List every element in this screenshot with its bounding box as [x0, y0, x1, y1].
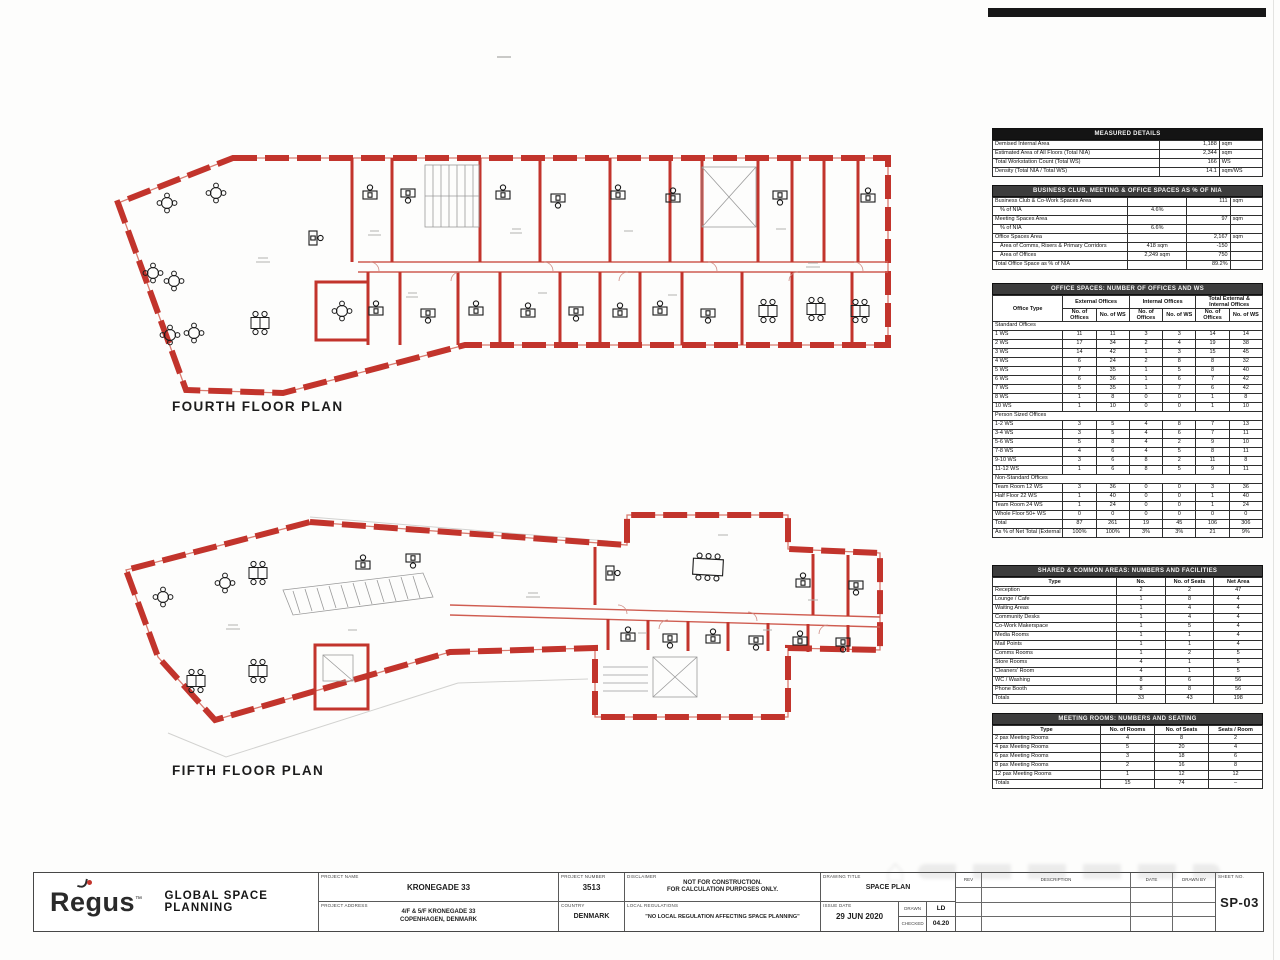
table-row: 2 pax Meeting Rooms482	[993, 735, 1263, 744]
table-cell: Lounge / Cafe	[993, 596, 1117, 605]
fifth-floor-plan-label: FIFTH FLOOR PLAN	[172, 763, 324, 778]
table-cell: 5	[1063, 439, 1096, 448]
table-cell: 1	[1117, 650, 1166, 659]
table-row: 3-4 WS3546711	[993, 430, 1263, 439]
table-row: Office Spaces Area2,167sqm	[993, 234, 1263, 243]
table-cell: 1	[1117, 605, 1166, 614]
table-row: 6 WS63616742	[993, 376, 1263, 385]
table-cell: 8 pax Meeting Rooms	[993, 762, 1101, 771]
table-cell: 6 WS	[993, 376, 1063, 385]
table-cell: 111	[1187, 198, 1230, 207]
table-cell: 4	[1214, 623, 1263, 632]
table-cell: 19	[1129, 520, 1162, 529]
table-row: 8 WS180018	[993, 394, 1263, 403]
table-cell: 10	[1229, 439, 1262, 448]
table-cell: 1	[1129, 349, 1162, 358]
table-cell: 0	[1163, 394, 1196, 403]
table-cell: 11	[1196, 457, 1229, 466]
table-cell: 16	[1155, 762, 1209, 771]
table-cell: 3%	[1129, 529, 1162, 538]
table-cell: 0	[1129, 511, 1162, 520]
table-cell: 1	[1196, 502, 1229, 511]
table-cell: 106	[1196, 520, 1229, 529]
table-cell: 10	[1229, 403, 1262, 412]
table-row: 2 WS1734241938	[993, 340, 1263, 349]
table-cell: 750	[1187, 252, 1230, 261]
table-cell: 10 WS	[993, 403, 1063, 412]
table-cell: 2	[1163, 457, 1196, 466]
table-cell: 14	[1196, 331, 1229, 340]
table-cell: 0	[1163, 502, 1196, 511]
table-cell: 21	[1196, 529, 1229, 538]
table-cell: WS	[1219, 159, 1262, 168]
regulations-label: LOCAL REGULATIONS	[627, 903, 678, 908]
table-cell: 7	[1196, 421, 1229, 430]
table-cell: 20	[1155, 744, 1209, 753]
issue-date-field: ISSUE DATE 29 JUN 2020	[821, 902, 899, 931]
area-ratios-title: BUSINESS CLUB, MEETING & OFFICE SPACES A…	[992, 185, 1263, 197]
table-cell: 42	[1096, 349, 1129, 358]
table-cell: 8	[1129, 457, 1162, 466]
fourth-floor-plan	[118, 158, 888, 393]
table-cell: 40	[1096, 493, 1129, 502]
table-row: Mail Points114	[993, 641, 1263, 650]
shared-col-no: No.	[1117, 578, 1166, 587]
table-cell: 6.6%	[1128, 225, 1187, 234]
table-cell: 5	[1063, 385, 1096, 394]
table-cell: 3	[1163, 331, 1196, 340]
table-cell: 74	[1155, 780, 1209, 789]
revision-table: REV DESCRIPTION DATE DRAWN BY	[956, 873, 1216, 931]
table-cell: 4	[1214, 614, 1263, 623]
table-row: Phone Booth8856	[993, 686, 1263, 695]
table-row: Total Workstation Count (Total WS)166WS	[993, 159, 1263, 168]
table-row: Cleaners' Room415	[993, 668, 1263, 677]
table-cell: 4	[1129, 439, 1162, 448]
table-cell: Totals	[993, 780, 1101, 789]
table-cell: sqm	[1219, 141, 1262, 150]
table-cell: 56	[1214, 686, 1263, 695]
table-cell	[1187, 225, 1230, 234]
checked-label: CHECKED	[902, 921, 924, 926]
table-row: Waiting Areas144	[993, 605, 1263, 614]
table-cell: 2	[1165, 650, 1214, 659]
shared-col-area: Net Area	[1214, 578, 1263, 587]
table-cell: 4	[1129, 421, 1162, 430]
table-cell: 100%	[1063, 529, 1096, 538]
table-cell: 18	[1155, 753, 1209, 762]
disclaimer-line2: FOR CALCULATION PURPOSES ONLY.	[667, 887, 778, 895]
table-cell: 1	[1101, 771, 1155, 780]
shared-col-seats: No. of Seats	[1165, 578, 1214, 587]
table-row: Store Rooms415	[993, 659, 1263, 668]
disclaimer-field: DISCLAIMER NOT FOR CONSTRUCTION. FOR CAL…	[625, 873, 820, 902]
table-cell: % of NIA	[993, 225, 1128, 234]
table-row: Total Office Space as % of NIA89.2%	[993, 261, 1263, 270]
table-cell: Business Club & Co-Work Spaces Area	[993, 198, 1128, 207]
project-address-line1: 4/F & 5/F KRONEGADE 33	[401, 909, 475, 917]
revision-empty-row	[956, 903, 1215, 918]
table-cell: 4	[1117, 659, 1166, 668]
table-row: 1 WS1111331414	[993, 331, 1263, 340]
table-cell: 11	[1096, 331, 1129, 340]
table-cell: Whole Floor 50+ WS	[993, 511, 1063, 520]
table-cell: 97	[1187, 216, 1230, 225]
table-cell: 36	[1096, 484, 1129, 493]
table-row: 10 WS11000110	[993, 403, 1263, 412]
table-cell: 3	[1063, 430, 1096, 439]
table-cell: 9%	[1229, 529, 1262, 538]
table-cell: Total Workstation Count (Total WS)	[993, 159, 1160, 168]
table-cell: 8	[1117, 686, 1166, 695]
table-cell: 4	[1209, 744, 1263, 753]
table-cell: Total	[993, 520, 1063, 529]
disclaimer-label: DISCLAIMER	[627, 874, 657, 879]
table-cell: 6	[1096, 448, 1129, 457]
regus-logo-dot	[87, 880, 92, 885]
fifth-floor-plan	[126, 515, 880, 757]
brand-trademark: ™	[135, 896, 143, 903]
meeting-col-type: Type	[993, 726, 1101, 735]
col-group-internal: Internal Offices	[1129, 296, 1196, 309]
table-row: Totals3343198	[993, 695, 1263, 704]
table-cell: 2,344	[1160, 150, 1219, 159]
table-cell: % of NIA	[993, 207, 1128, 216]
table-cell: 19	[1196, 340, 1229, 349]
table-cell: 4	[1165, 614, 1214, 623]
table-cell: 1,188	[1160, 141, 1219, 150]
table-cell: 42	[1229, 385, 1262, 394]
table-row: Co-Work Makerspace154	[993, 623, 1263, 632]
table-cell: 14	[1229, 331, 1262, 340]
table-row: Density (Total NIA / Total WS)14.1sqm/WS	[993, 168, 1263, 177]
table-row: Area of Comms, Risers & Primary Corridor…	[993, 243, 1263, 252]
table-cell: 5	[1163, 466, 1196, 475]
table-cell: 3%	[1163, 529, 1196, 538]
scan-artifact-bar	[988, 8, 1266, 17]
table-cell: 418 sqm	[1128, 243, 1187, 252]
table-cell: 1	[1117, 632, 1166, 641]
drawing-title-label: DRAWING TITLE	[823, 874, 861, 879]
table-row: 1-2 WS3548713	[993, 421, 1263, 430]
project-number-cell: PROJECT NUMBER 3513 COUNTRY DENMARK	[559, 873, 625, 931]
table-row: Meeting Spaces Area97sqm	[993, 216, 1263, 225]
table-cell: 56	[1214, 677, 1263, 686]
table-cell: 3	[1101, 753, 1155, 762]
table-row: 8 pax Meeting Rooms2168	[993, 762, 1263, 771]
table-cell: 2	[1129, 340, 1162, 349]
table-cell: 4	[1214, 596, 1263, 605]
table-cell: 5	[1214, 650, 1263, 659]
table-cell: 1	[1196, 394, 1229, 403]
project-name-label: PROJECT NAME	[321, 874, 359, 879]
table-cell: As % of Net Total (External & Internal O…	[993, 529, 1063, 538]
table-cell: 1	[1117, 641, 1166, 650]
table-cell: 8	[1196, 448, 1229, 457]
table-cell: 1	[1063, 394, 1096, 403]
table-cell: 6	[1209, 753, 1263, 762]
scan-speck	[497, 56, 511, 58]
measured-details-title: MEASURED DETAILS	[992, 128, 1263, 140]
table-cell: 8	[1129, 466, 1162, 475]
table-row: Estimated Area of All Floors (Total NIA)…	[993, 150, 1263, 159]
shared-areas-title: SHARED & COMMON AREAS: NUMBERS AND FACIL…	[992, 565, 1263, 577]
table-cell: Estimated Area of All Floors (Total NIA)	[993, 150, 1160, 159]
table-row: Media Rooms114	[993, 632, 1263, 641]
table-cell: 5	[1214, 659, 1263, 668]
project-address-line2: COPENHAGEN, DENMARK	[400, 917, 477, 925]
table-cell: 4	[1214, 605, 1263, 614]
table-cell: 1	[1063, 493, 1096, 502]
revision-header-row: REV DESCRIPTION DATE DRAWN BY	[956, 873, 1215, 888]
issue-row: ISSUE DATE 29 JUN 2020 DRAWN LD CHECKED …	[821, 902, 955, 931]
table-cell: 8	[1209, 762, 1263, 771]
table-cell: 4	[1129, 430, 1162, 439]
table-cell: 11	[1229, 466, 1262, 475]
measured-details-grid: Demised Internal Area1,188sqmEstimated A…	[992, 140, 1263, 177]
table-cell: Meeting Spaces Area	[993, 216, 1128, 225]
table-cell: 0	[1129, 502, 1162, 511]
table-cell: 7-8 WS	[993, 448, 1063, 457]
table-cell: 2	[1101, 762, 1155, 771]
table-cell: 6	[1163, 376, 1196, 385]
table-cell: 8	[1165, 686, 1214, 695]
drawing-title-cell: DRAWING TITLE SPACE PLAN ISSUE DATE 29 J…	[821, 873, 956, 931]
table-cell: 6 pax Meeting Rooms	[993, 753, 1101, 762]
table-row: Non-Standard Offices	[993, 475, 1263, 484]
table-row: Area of Offices2,249 sqm750	[993, 252, 1263, 261]
table-row: Totals1574–	[993, 780, 1263, 789]
brand-cell: Regus™ GLOBAL SPACE PLANNING	[34, 873, 319, 931]
regulations-field: LOCAL REGULATIONS "NO LOCAL REGULATION A…	[625, 902, 820, 931]
table-cell: 12 pax Meeting Rooms	[993, 771, 1101, 780]
table-cell: WC / Washing	[993, 677, 1117, 686]
table-cell: –	[1209, 780, 1263, 789]
table-cell: Non-Standard Offices	[993, 475, 1263, 484]
subcol-int-ws: No. of WS	[1163, 309, 1196, 322]
table-cell: 1	[1063, 466, 1096, 475]
shared-areas-table: SHARED & COMMON AREAS: NUMBERS AND FACIL…	[992, 565, 1263, 704]
sheet-number-value: SP-03	[1216, 873, 1263, 931]
table-cell	[1128, 198, 1187, 207]
table-cell	[1230, 252, 1262, 261]
table-cell: 36	[1229, 484, 1262, 493]
table-cell: 4	[1163, 340, 1196, 349]
rev-col-date: DATE	[1131, 873, 1173, 887]
table-cell: sqm	[1230, 234, 1262, 243]
table-cell	[1187, 207, 1230, 216]
title-block: Regus™ GLOBAL SPACE PLANNING PROJECT NAM…	[33, 872, 1264, 932]
table-cell: 6	[1063, 376, 1096, 385]
table-row: 7-8 WS4645811	[993, 448, 1263, 457]
table-cell: 8	[1196, 358, 1229, 367]
drawn-label: DRAWN	[904, 906, 921, 911]
table-cell: Community Desks	[993, 614, 1117, 623]
area-ratios-table: BUSINESS CLUB, MEETING & OFFICE SPACES A…	[992, 185, 1263, 270]
col-group-total: Total External & Internal Offices	[1196, 296, 1263, 309]
table-cell: 100%	[1096, 529, 1129, 538]
table-cell	[1128, 261, 1187, 270]
table-cell: 13	[1229, 421, 1262, 430]
table-cell: Person Sized Offices	[993, 412, 1263, 421]
table-cell: 6	[1165, 677, 1214, 686]
table-cell: Waiting Areas	[993, 605, 1117, 614]
table-cell: 8	[1229, 394, 1262, 403]
brand-name: Regus	[50, 887, 135, 917]
meeting-col-seats: No. of Seats	[1155, 726, 1209, 735]
table-cell: 0	[1129, 484, 1162, 493]
meeting-rooms-title: MEETING ROOMS: NUMBERS AND SEATING	[992, 713, 1263, 725]
table-cell	[1230, 261, 1262, 270]
table-row: As % of Net Total (External & Internal O…	[993, 529, 1263, 538]
col-group-external: External Offices	[1063, 296, 1130, 309]
col-office-type: Office Type	[993, 296, 1063, 322]
table-cell: 1	[1196, 493, 1229, 502]
country-label: COUNTRY	[561, 903, 585, 908]
drawing-title-field: DRAWING TITLE SPACE PLAN	[821, 873, 955, 902]
table-cell: Area of Offices	[993, 252, 1128, 261]
meeting-rooms-grid: Type No. of Rooms No. of Seats Seats / R…	[992, 725, 1263, 789]
table-row: WC / Washing8656	[993, 677, 1263, 686]
checked-value: 04.20	[933, 920, 949, 927]
table-cell: 0	[1063, 511, 1096, 520]
table-cell: 12	[1209, 771, 1263, 780]
table-cell: 40	[1229, 367, 1262, 376]
office-spaces-title: OFFICE SPACES: NUMBER OF OFFICES AND WS	[992, 283, 1263, 295]
table-cell: 1	[1129, 376, 1162, 385]
table-cell: 6	[1096, 466, 1129, 475]
table-cell: 34	[1096, 340, 1129, 349]
subcol-ext-ws: No. of WS	[1096, 309, 1129, 322]
table-cell: 3	[1063, 421, 1096, 430]
table-cell: 10	[1096, 403, 1129, 412]
table-cell: 1	[1165, 632, 1214, 641]
measured-details-table: MEASURED DETAILS Demised Internal Area1,…	[992, 128, 1263, 177]
project-cell: PROJECT NAME KRONEGADE 33 PROJECT ADDRES…	[319, 873, 559, 931]
table-cell: 45	[1229, 349, 1262, 358]
table-cell: 0	[1129, 394, 1162, 403]
table-cell: Co-Work Makerspace	[993, 623, 1117, 632]
table-cell: 4	[1214, 641, 1263, 650]
subcol-ext-offices: No. of Offices	[1063, 309, 1096, 322]
table-row: Demised Internal Area1,188sqm	[993, 141, 1263, 150]
table-cell: 43	[1165, 695, 1214, 704]
table-cell: 4	[1165, 605, 1214, 614]
table-cell: 5	[1096, 421, 1129, 430]
table-cell: Reception	[993, 587, 1117, 596]
table-cell: 7	[1196, 376, 1229, 385]
table-cell: 1	[1117, 623, 1166, 632]
scan-edge-line	[1273, 0, 1274, 960]
project-number-label: PROJECT NUMBER	[561, 874, 605, 879]
table-cell	[1230, 243, 1262, 252]
table-cell: Demised Internal Area	[993, 141, 1160, 150]
disclaimer-line1: NOT FOR CONSTRUCTION.	[683, 880, 762, 888]
table-cell: 8	[1096, 394, 1129, 403]
table-row: Comms Rooms125	[993, 650, 1263, 659]
table-cell: 24	[1096, 358, 1129, 367]
meeting-rooms-table: MEETING ROOMS: NUMBERS AND SEATING Type …	[992, 713, 1263, 789]
table-row: 4 WS62428832	[993, 358, 1263, 367]
regus-logo: Regus™	[50, 887, 143, 918]
table-cell: 11	[1229, 430, 1262, 439]
table-cell: 6	[1096, 457, 1129, 466]
table-cell: 8 WS	[993, 394, 1063, 403]
table-row: Standard Offices	[993, 322, 1263, 331]
table-row: Team Room 24 WS12400124	[993, 502, 1263, 511]
table-cell: 1	[1063, 403, 1096, 412]
table-row: Team Room 12 WS33600336	[993, 484, 1263, 493]
table-cell: 7	[1063, 367, 1096, 376]
table-cell: 15	[1101, 780, 1155, 789]
table-cell: 8	[1163, 421, 1196, 430]
table-cell: 0	[1129, 403, 1162, 412]
table-row: Business Club & Co-Work Spaces Area111sq…	[993, 198, 1263, 207]
table-cell: 2	[1117, 587, 1166, 596]
table-cell: 12	[1155, 771, 1209, 780]
table-cell: 5 WS	[993, 367, 1063, 376]
table-cell: Media Rooms	[993, 632, 1117, 641]
table-cell: 8	[1096, 439, 1129, 448]
table-cell: 1-2 WS	[993, 421, 1063, 430]
table-cell: 5	[1165, 623, 1214, 632]
table-row: 7 WS53517642	[993, 385, 1263, 394]
table-cell: 1	[1117, 596, 1166, 605]
table-row: Whole Floor 50+ WS000000	[993, 511, 1263, 520]
table-cell: 87	[1063, 520, 1096, 529]
table-cell: Cleaners' Room	[993, 668, 1117, 677]
table-cell: Totals	[993, 695, 1117, 704]
table-cell: sqm	[1219, 150, 1262, 159]
table-cell: 1	[1165, 668, 1214, 677]
table-row: Total872611945106306	[993, 520, 1263, 529]
table-cell: 3	[1163, 349, 1196, 358]
table-cell: 4	[1101, 735, 1155, 744]
table-cell: 36	[1096, 376, 1129, 385]
table-row: 3 WS1442131545	[993, 349, 1263, 358]
meeting-col-rooms: No. of Rooms	[1101, 726, 1155, 735]
table-cell: 14	[1063, 349, 1096, 358]
table-cell: 0	[1229, 511, 1262, 520]
table-cell: 2	[1165, 587, 1214, 596]
table-cell: 1	[1063, 502, 1096, 511]
table-cell: 261	[1096, 520, 1129, 529]
table-cell: sqm	[1230, 198, 1262, 207]
project-number-field: PROJECT NUMBER 3513	[559, 873, 624, 902]
table-row: 5 WS73515840	[993, 367, 1263, 376]
table-cell: 3	[1063, 457, 1096, 466]
table-cell: 38	[1229, 340, 1262, 349]
table-cell: Phone Booth	[993, 686, 1117, 695]
table-cell: 2	[1163, 439, 1196, 448]
table-cell: 1	[1129, 367, 1162, 376]
table-cell	[1128, 216, 1187, 225]
table-cell: 3	[1196, 484, 1229, 493]
table-cell	[1128, 234, 1187, 243]
table-cell: 3 WS	[993, 349, 1063, 358]
table-cell: 89.2%	[1187, 261, 1230, 270]
table-cell: 40	[1229, 493, 1262, 502]
table-cell: 2	[1209, 735, 1263, 744]
meeting-col-seats-per-room: Seats / Room	[1209, 726, 1263, 735]
table-cell: 0	[1163, 403, 1196, 412]
fourth-floor-plan-label: FOURTH FLOOR PLAN	[172, 399, 344, 414]
table-cell: 33	[1117, 695, 1166, 704]
table-row: 6 pax Meeting Rooms3186	[993, 753, 1263, 762]
issue-date-label: ISSUE DATE	[823, 903, 851, 908]
table-cell: 6	[1163, 430, 1196, 439]
country-field: COUNTRY DENMARK	[559, 902, 624, 931]
